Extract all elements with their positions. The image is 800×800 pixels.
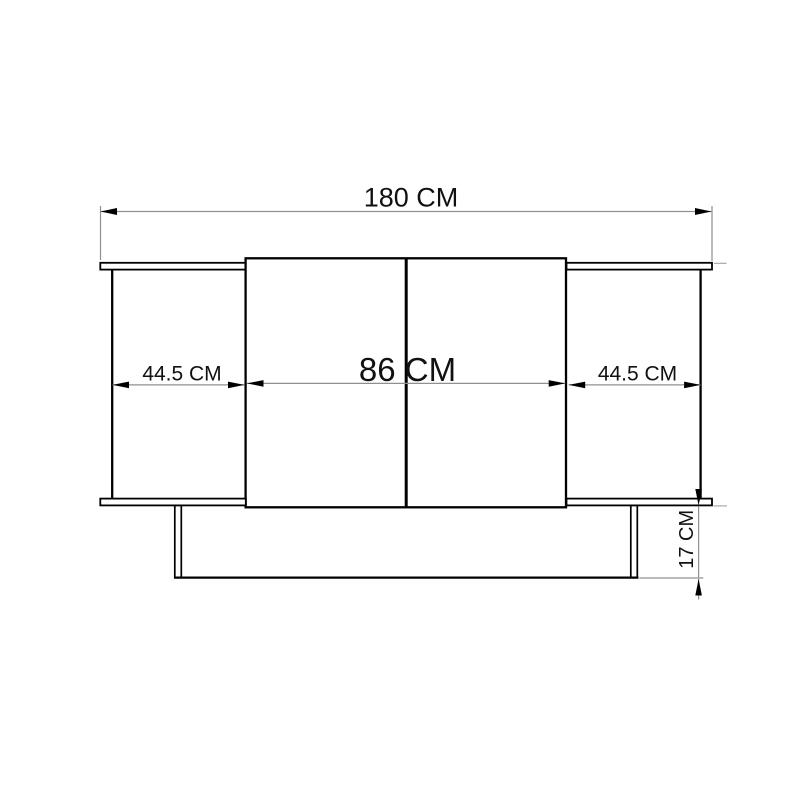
svg-text:86 CM: 86 CM (359, 351, 456, 388)
svg-text:17 CM: 17 CM (676, 510, 698, 569)
svg-text:180 CM: 180 CM (364, 183, 459, 213)
svg-text:44.5 CM: 44.5 CM (598, 363, 677, 386)
svg-text:44.5 CM: 44.5 CM (142, 363, 221, 386)
